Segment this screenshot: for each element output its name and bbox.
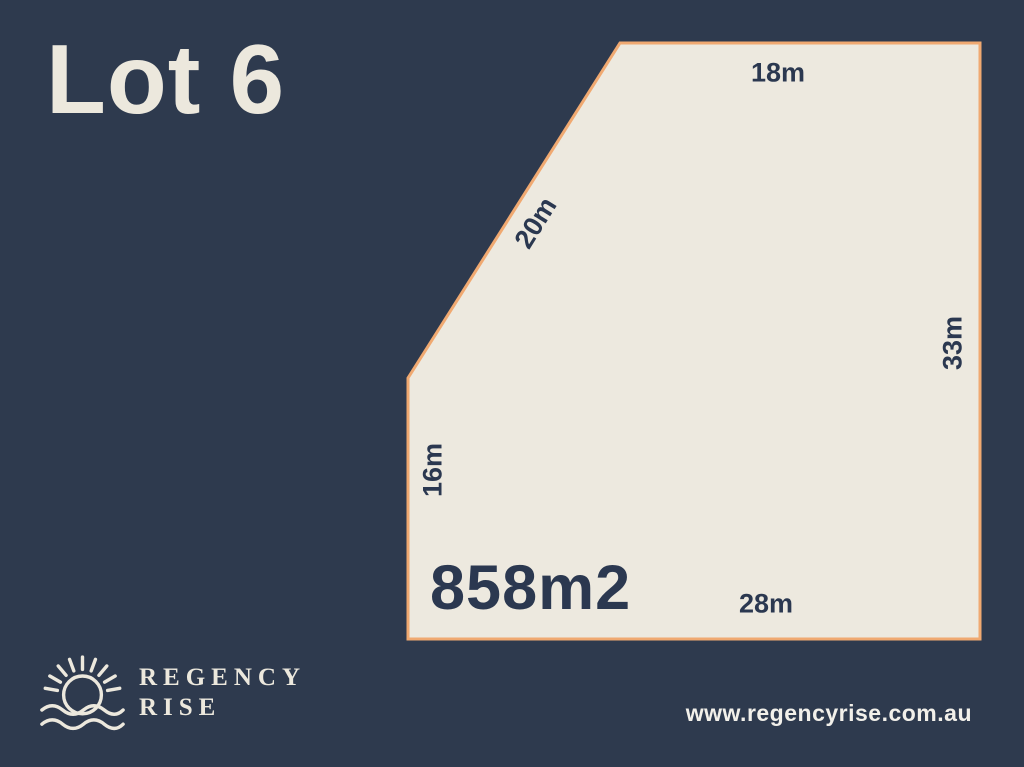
website-url: www.regencyrise.com.au [686,700,972,727]
rising-sun-icon [40,648,125,738]
dimension-label-right: 33m [938,316,969,370]
lot-area-label: 858m2 [430,552,631,624]
dimension-label-top: 18m [751,58,805,89]
logo-wordmark-line1: REGENCY [139,663,306,693]
logo-wordmark: REGENCY RISE [139,663,306,723]
lot-flyer: Lot 6 18m 20m 33m 16m 28m 858m2 [0,0,1024,767]
lot-boundary [408,43,980,639]
dimension-label-left: 16m [418,443,449,497]
logo-wordmark-line2: RISE [139,693,306,723]
brand-logo: REGENCY RISE [40,648,306,738]
dimension-label-bottom: 28m [739,589,793,620]
